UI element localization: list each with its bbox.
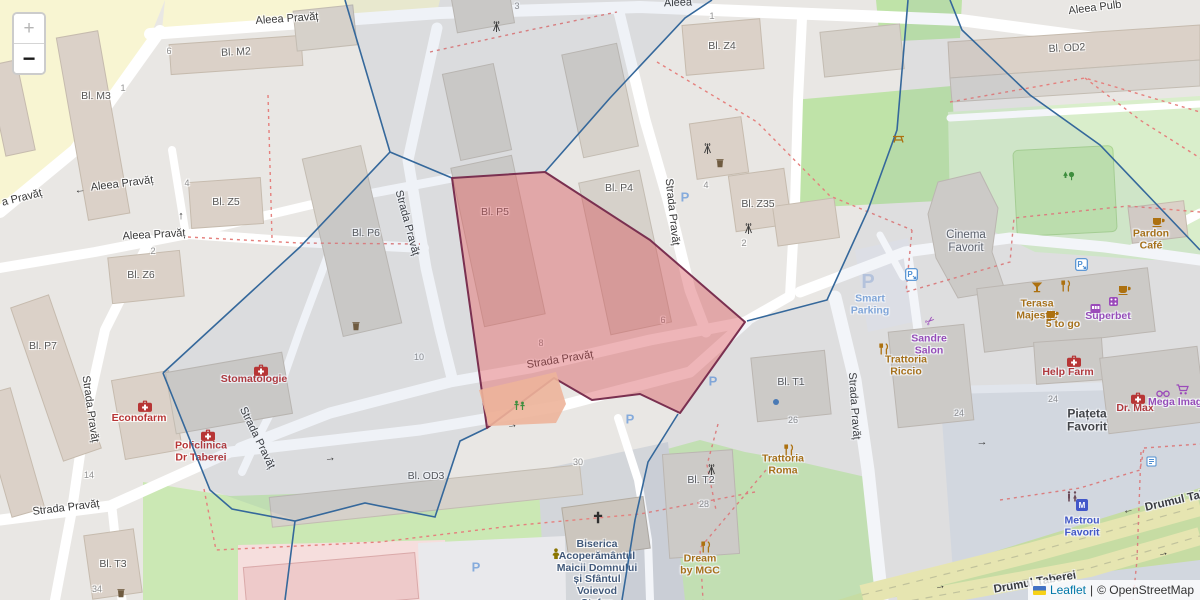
house-number: 6 (166, 46, 171, 56)
street-a-pravat-left: a Pravăț (1, 187, 44, 209)
parking-p-smart: P (861, 271, 874, 293)
oneway-right-icon-3: → (1158, 547, 1169, 559)
house-number: 30 (573, 457, 583, 467)
house-number: 6 (660, 315, 665, 325)
svg-text:P: P (1077, 260, 1083, 269)
oneway-left-icon-1: ← (75, 184, 86, 196)
zoom-in-button[interactable]: + (14, 14, 44, 44)
bldg-label-od3: Bl. OD3 (408, 471, 445, 483)
selected-plot-polygon[interactable] (452, 172, 745, 428)
house-number: 2 (741, 238, 746, 248)
house-number: 10 (414, 352, 424, 362)
zoom-out-button[interactable]: − (14, 44, 44, 73)
house-number: 1 (120, 83, 125, 93)
house-number: 14 (84, 470, 94, 480)
house-number: 3 (514, 1, 519, 11)
bldg-label-p5: Bl. P5 (481, 207, 509, 219)
church-cross-icon: ✝ (592, 509, 605, 527)
house-number: 28 (699, 499, 709, 509)
bldg-label-z4: Bl. Z4 (708, 41, 735, 53)
street-aleea-pravat-top: Aleea Pravăț (255, 11, 319, 28)
node-dot-icon (773, 399, 779, 405)
playground-area (479, 372, 566, 426)
oneway-right-icon-2: → (507, 419, 518, 431)
street-aleea-pulb: Aleea Pulb (1068, 0, 1122, 17)
house-number: 34 (92, 584, 102, 594)
bldg-label-p6: Bl. P6 (352, 228, 380, 240)
poi-policlinica: PoliclinicaDr Taberei (175, 440, 227, 464)
street-strada-pravat-ne: Strada Pravăț (662, 178, 681, 246)
poi-biserica: BisericaAcoperământulMaicii Domnuluiși S… (557, 539, 638, 600)
svg-text:P: P (907, 270, 913, 279)
house-number: 24 (954, 408, 964, 418)
house-number: 2 (150, 246, 155, 256)
street-strada-pravat-sw: Strada Pravăț (32, 498, 100, 518)
leaflet-link[interactable]: Leaflet (1050, 583, 1086, 597)
bldg-label-z6: Bl. Z6 (127, 270, 154, 282)
roads (0, 7, 1200, 600)
street-aleea-pravat-mid: Aleea Pravăț (122, 227, 186, 243)
house-number: 24 (1048, 394, 1058, 404)
poi-help-farm: Help Farm (1042, 367, 1093, 379)
zoom-control: + − (12, 12, 46, 75)
street-strada-pravat-s: Strada Pravăț (846, 372, 863, 440)
school-building (243, 553, 418, 600)
bldg-label-m3: Bl. M3 (81, 91, 111, 103)
bldg-label-t1: Bl. T1 (777, 377, 804, 389)
oneway-right-icon-1: → (325, 452, 336, 464)
church-building (562, 497, 650, 560)
parking-p-1: P (626, 413, 635, 428)
poi-trattoria-riccio: TrattoriaRiccio (885, 354, 927, 378)
metro-station-icon: M (1076, 499, 1088, 511)
street-drumul-taberei-ne: Drumul Taberei (1144, 483, 1200, 514)
parking-p-4: P (472, 561, 481, 576)
bldg-label-od2: Bl. OD2 (1048, 42, 1085, 56)
poi-pardon-cafe: PardonCafé (1133, 228, 1169, 252)
poi-econofarm: Econofarm (112, 413, 167, 425)
street-strada-pravat-n: Strada Pravăț (392, 189, 421, 257)
street-strada-pravat-h: Strada Pravăț (526, 349, 594, 372)
bldg-label-z5: Bl. Z5 (212, 197, 239, 209)
place-piateta-favorit: PiațetaFavorit (1067, 408, 1107, 435)
house-number: 8 (538, 338, 543, 348)
bldg-label-m2: Bl. M2 (221, 46, 251, 59)
house-number: 4 (184, 178, 189, 188)
oneway-left-icon-2: ← (1123, 504, 1134, 516)
poi-trattoria-roma: TrattoriaRoma (762, 453, 804, 477)
poi-sandre-salon: SandreSalon (911, 333, 947, 357)
ukraine-flag-icon (1033, 586, 1046, 595)
poi-metrou-favorit: MetrouFavorit (1064, 515, 1099, 539)
map-labels: Aleea PravățAleea PulbAleeaa PravățAleea… (0, 0, 1200, 600)
boundary-polygons[interactable] (163, 0, 1200, 600)
parking-p-3: P (681, 191, 690, 206)
bldg-label-p7: Bl. P7 (29, 341, 57, 353)
bldg-label-z35: Bl. Z35 (741, 199, 774, 211)
poi-terasa-majestic: TerasaMajestic (1016, 298, 1057, 322)
poi-dream-by-mgc: Dreamby MGC (680, 553, 720, 577)
poi-stomatologie: Stomatologie (221, 374, 288, 386)
vector-overlay (0, 0, 1200, 600)
sandre-salon-scissors-icon: ✂ (925, 314, 935, 328)
bldg-label-t3: Bl. T3 (99, 559, 126, 571)
poi-smart-parking: SmartParking (851, 293, 890, 317)
house-number: 4 (703, 180, 708, 190)
attribution-bar: Leaflet | © OpenStreetMap (1028, 580, 1200, 600)
poi-dr-max: Dr. Max (1116, 403, 1153, 415)
poi-superbet: Superbet (1085, 311, 1131, 323)
oneway-right-icon-4: → (935, 580, 946, 592)
poi-mega-image: Mega Image (1148, 397, 1200, 409)
bldg-label-t2: Bl. T2 (687, 475, 714, 487)
admin-boundaries (188, 12, 1200, 600)
oneway-right-icon-5: → (977, 436, 988, 448)
buildings (0, 0, 1200, 600)
parking-p-2: P (709, 375, 718, 390)
street-aleea-pravat-west: Aleea Pravăț (90, 174, 154, 194)
bldg-label-p4: Bl. P4 (605, 183, 633, 195)
house-number: 26 (788, 415, 798, 425)
street-strada-pravat-curve: Strada Pravăț (237, 405, 278, 471)
house-number: 1 (709, 11, 714, 21)
map-icons: ✂✝MPP←↑→→←→→→ (0, 0, 1200, 600)
street-aleea-partial: Aleea (664, 0, 693, 10)
landuse-areas (0, 0, 1200, 600)
map-base-layer (0, 0, 1200, 600)
map-canvas[interactable]: Aleea PravățAleea PulbAleeaa PravățAleea… (0, 0, 1200, 600)
attribution-separator: | (1090, 583, 1093, 597)
street-strada-pravat-left: Strada Pravăț (79, 375, 101, 443)
poi-five-to-go: 5 to go (1046, 319, 1080, 331)
oneway-up-icon: ↑ (178, 210, 184, 222)
osm-copyright: © OpenStreetMap (1097, 583, 1194, 597)
place-cinema-favorit: CinemaFavorit (946, 229, 986, 255)
